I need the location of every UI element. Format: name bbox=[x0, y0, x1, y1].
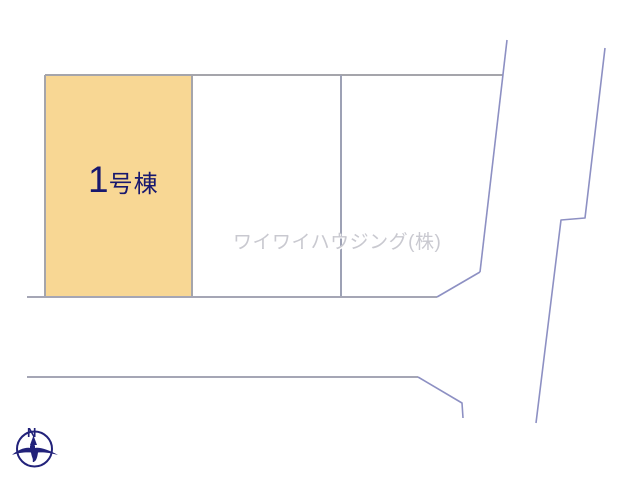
compass-north-label: N bbox=[27, 425, 36, 440]
plot-1-label: 1号棟 bbox=[88, 160, 238, 200]
plot-1-label-number: 1 bbox=[88, 159, 109, 200]
road-lower-corner-line bbox=[418, 377, 463, 418]
road-corner-cut-line bbox=[437, 272, 480, 297]
east-road-boundary-line bbox=[536, 48, 605, 423]
site-plan-diagram: N 1号棟 ワイワイハウジング(株) bbox=[0, 0, 640, 480]
company-watermark: ワイワイハウジング(株) bbox=[233, 227, 441, 254]
north-compass: N bbox=[12, 425, 58, 467]
plot-1-label-suffix: 号棟 bbox=[109, 171, 159, 198]
